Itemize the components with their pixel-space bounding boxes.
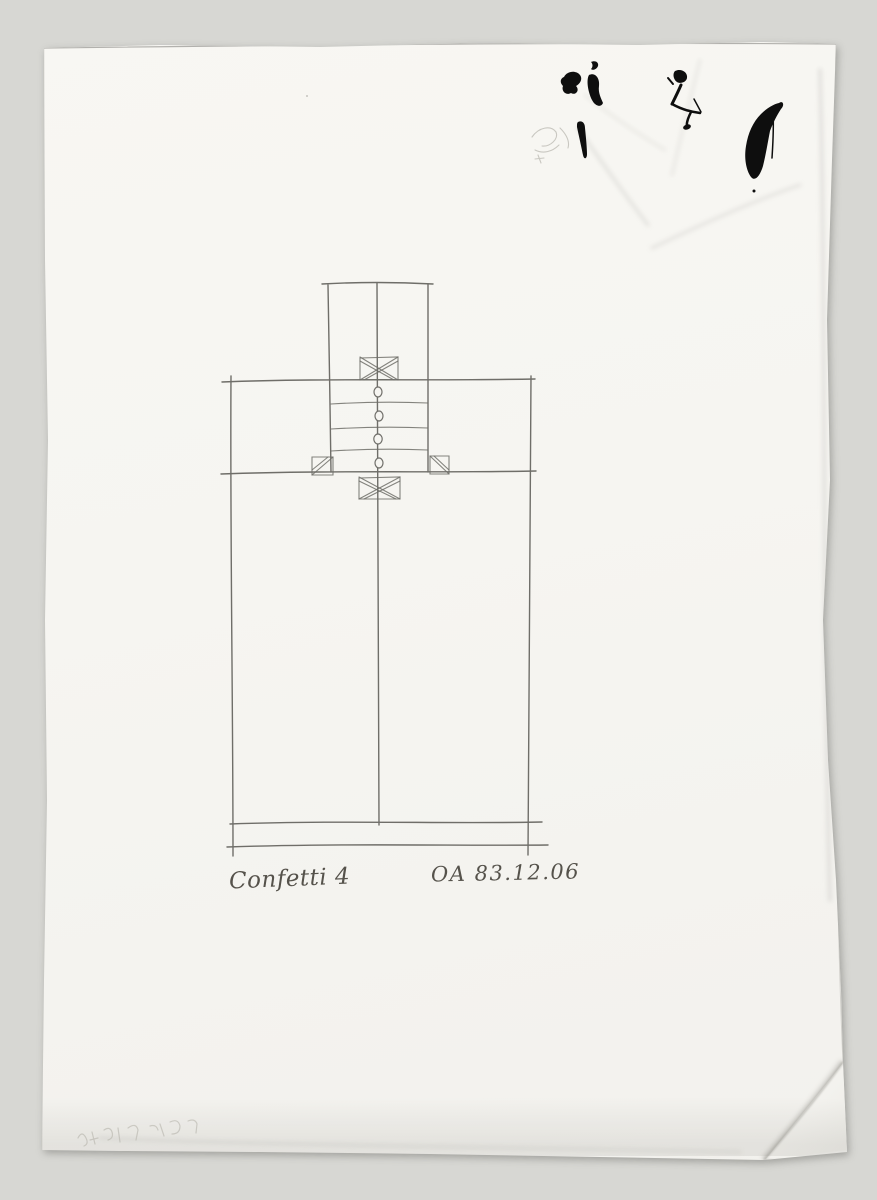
ink-drip <box>577 121 587 158</box>
band-bottom-line <box>221 471 536 474</box>
top-cabinet-left-edge <box>328 285 331 472</box>
ink-blot-figure-leg <box>672 104 700 113</box>
drawer-divider <box>331 402 428 404</box>
sketch-date-inscription: OA 83.12.06 <box>431 859 581 886</box>
ink-blot-1 <box>561 72 581 94</box>
ink-splatter-group <box>532 61 783 192</box>
lower-box-base-line-lower <box>227 845 548 847</box>
lower-box-base-line-upper <box>230 822 542 824</box>
furniture-sketch-svg <box>0 0 877 1200</box>
ink-blot-figure-slash <box>694 99 701 112</box>
paper-sheet: Confetti 4 OA 83.12.06 <box>0 0 877 1200</box>
paper-edge-lines <box>42 43 843 1150</box>
center-axis-line <box>377 283 379 825</box>
pencil-speck <box>306 95 308 97</box>
ink-blot-large-body <box>745 102 783 179</box>
ink-blot-figure-body <box>672 85 681 104</box>
ink-blot-3 <box>588 74 603 106</box>
drawer-knob <box>374 434 382 444</box>
sketch-drawer-stack <box>331 387 428 468</box>
furniture-sketch <box>221 95 548 856</box>
ink-blot-2 <box>591 61 598 70</box>
drawer-knob <box>374 387 382 397</box>
drawer-divider <box>331 427 428 429</box>
drawer-knob <box>375 411 383 421</box>
ink-speck <box>753 190 756 193</box>
drawer-divider <box>331 449 428 451</box>
sketch-bracket-upper-bowtie <box>360 357 398 380</box>
sketch-bracket-lower-bowtie <box>359 477 400 499</box>
sketch-lower-box <box>227 376 548 856</box>
paper-shadow-wrap: Confetti 4 OA 83.12.06 <box>0 0 877 1200</box>
ink-blot-figure-mark <box>668 78 673 84</box>
drawer-knob <box>375 458 383 468</box>
pencil-scribble-marks <box>532 128 569 163</box>
bottom-edge-shading <box>42 1098 847 1156</box>
ink-blot-large <box>745 102 783 192</box>
lower-box-right-edge <box>528 376 531 855</box>
sketch-title-inscription: Confetti 4 <box>229 863 351 894</box>
lower-box-left-edge <box>231 376 233 856</box>
scan-background: Confetti 4 OA 83.12.06 <box>0 0 877 1200</box>
ink-blot-figure-head <box>674 70 688 83</box>
paper-crease-shading <box>100 60 830 1152</box>
